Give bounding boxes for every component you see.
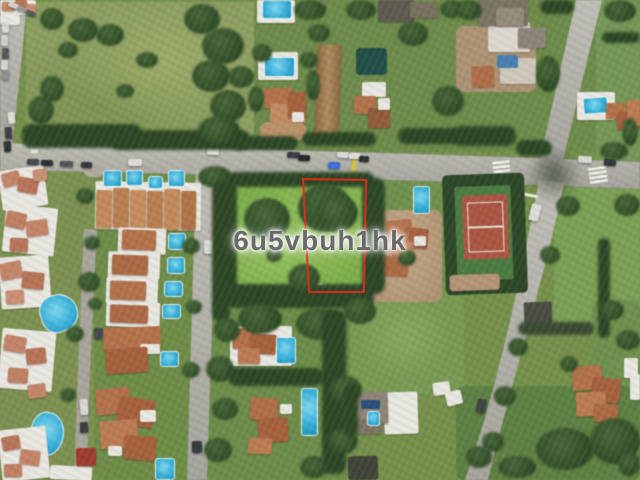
tree [88,298,102,310]
tree [204,438,232,462]
swimming-pool [582,96,608,115]
building [292,112,304,122]
tree [616,330,640,350]
apartment-building [50,465,93,480]
solar-panels [361,400,380,409]
garden-wall [518,322,594,335]
car-on-road [337,152,349,158]
townhouse-roof [164,189,181,230]
tree [308,24,330,42]
swimming-pool [168,170,185,187]
tree [238,304,282,334]
tree [182,362,200,378]
parked-car [192,441,203,454]
tree [68,18,98,42]
tree [76,188,94,204]
apartment-roof [33,168,48,181]
tree [294,0,326,20]
car-on-road [578,156,592,164]
house-roof [378,0,414,22]
road-marking [31,149,38,153]
building [140,410,156,422]
house-roof [410,2,438,18]
house-roof [496,8,524,26]
tree [600,142,628,160]
parked-car [80,422,88,433]
swimming-pool [103,170,122,187]
building [108,446,122,456]
tree [116,84,134,98]
villa-roof [110,280,147,300]
car-on-road [328,162,340,169]
villa-roof [248,438,273,455]
apartment-roof [21,271,45,290]
parked-car [94,328,103,339]
parked-car [1,60,8,70]
parked-car [1,35,8,46]
parked-car [528,203,542,222]
tree [66,326,84,342]
villa-roof [105,347,149,375]
swimming-pool [167,257,185,274]
apartment-roof [25,347,47,365]
car-on-road [298,155,310,161]
tree [344,298,376,324]
terrace [362,82,386,97]
tree [300,456,328,478]
townhouse-roof [147,191,164,230]
swimming-pool [276,337,296,364]
hedge-row [232,136,298,150]
dark-building [348,455,379,480]
tree [182,238,200,254]
tree [494,386,516,406]
tree [432,86,464,116]
pavilion-roof [472,66,495,88]
parked-car [81,162,92,168]
swimming-pool [264,57,295,77]
parked-car [4,141,12,152]
villa-roof [238,348,260,364]
hedge-row [212,182,230,322]
parked-car [2,22,9,33]
villa-roof [112,254,149,275]
parked-car [79,399,88,416]
hedge-row [452,126,516,146]
tree [58,42,78,58]
townhouse-roof [130,190,147,228]
parked-car [7,112,15,125]
tree [40,8,64,30]
apartment-roof [10,238,29,253]
tree [536,56,560,92]
tree [536,428,594,470]
apartment-roof [25,219,49,238]
house-roof [368,108,390,128]
tree [228,66,254,88]
tree [192,60,230,92]
tree [508,338,528,356]
hedge-row [228,368,324,386]
car-on-road [128,159,142,166]
swimming-pool [155,458,175,480]
tree [600,300,624,320]
dark-pool [356,48,387,75]
tree [498,456,536,478]
tree [622,118,638,146]
villa-roof [110,304,149,323]
parked-car [2,48,9,59]
tree [466,446,492,468]
tree [618,452,640,476]
apartment-roof [8,367,29,383]
villa-roof [122,229,157,250]
swimming-pool [413,186,430,214]
tennis-court [442,173,528,296]
swimming-pool [262,0,292,19]
tree [398,22,428,46]
tree [556,196,580,216]
tree [202,28,244,64]
aerial-photo: 6u5vbuh1hk [0,0,640,480]
swimming-pool [160,351,179,367]
tree [96,24,124,46]
parked-car [5,127,13,139]
tree [288,264,320,292]
hedge-row [540,0,574,14]
swimming-pool [164,281,183,297]
building [280,404,292,414]
tree [346,0,376,20]
tree [614,194,640,216]
townhouse-roof [96,190,113,228]
tree [604,0,636,22]
tree [136,52,158,68]
tree [560,356,578,372]
swimming-pool [301,388,318,436]
townhouse-roof [113,188,130,228]
patio [383,391,418,434]
tree [540,246,560,264]
hedge-row [344,384,358,436]
hedge-row [602,32,640,43]
watermark-text: 6u5vbuh1hk [233,225,406,257]
tree [306,70,320,100]
tree [212,398,238,420]
house-roof [518,28,546,48]
road-marking-yellow [352,159,357,172]
apartment-roof [4,464,22,477]
tree [78,272,100,292]
crosswalk [588,166,608,184]
apartment-roof [19,449,41,467]
car-on-road [359,156,369,162]
tree-shadow [526,146,582,204]
tree [252,44,272,62]
parked-car [41,160,53,166]
path [449,274,500,292]
tree [214,318,240,342]
building [378,98,390,110]
parked-car [2,70,9,80]
blue-tarp [497,55,518,68]
building [414,236,426,246]
swimming-pool [126,170,143,186]
tree [248,86,264,112]
tree [456,0,482,20]
tree [60,388,76,402]
shed-roof [76,448,97,467]
building [630,374,640,400]
parked-car [27,159,39,165]
tree [186,300,202,314]
swimming-pool [148,176,163,189]
apartment-roof [6,290,25,305]
swimming-pool [162,304,181,319]
hedge-row [598,238,610,338]
tree [28,96,54,124]
tree [84,236,100,250]
parked-car [60,161,73,167]
swimming-pool [367,411,380,426]
apartment-roof [27,383,47,399]
tree [300,52,318,68]
hedge-row [302,132,376,146]
townhouse-roof [181,191,197,230]
hedge-row [228,172,374,187]
villa-roof [123,435,157,462]
hedge-row [398,128,460,144]
